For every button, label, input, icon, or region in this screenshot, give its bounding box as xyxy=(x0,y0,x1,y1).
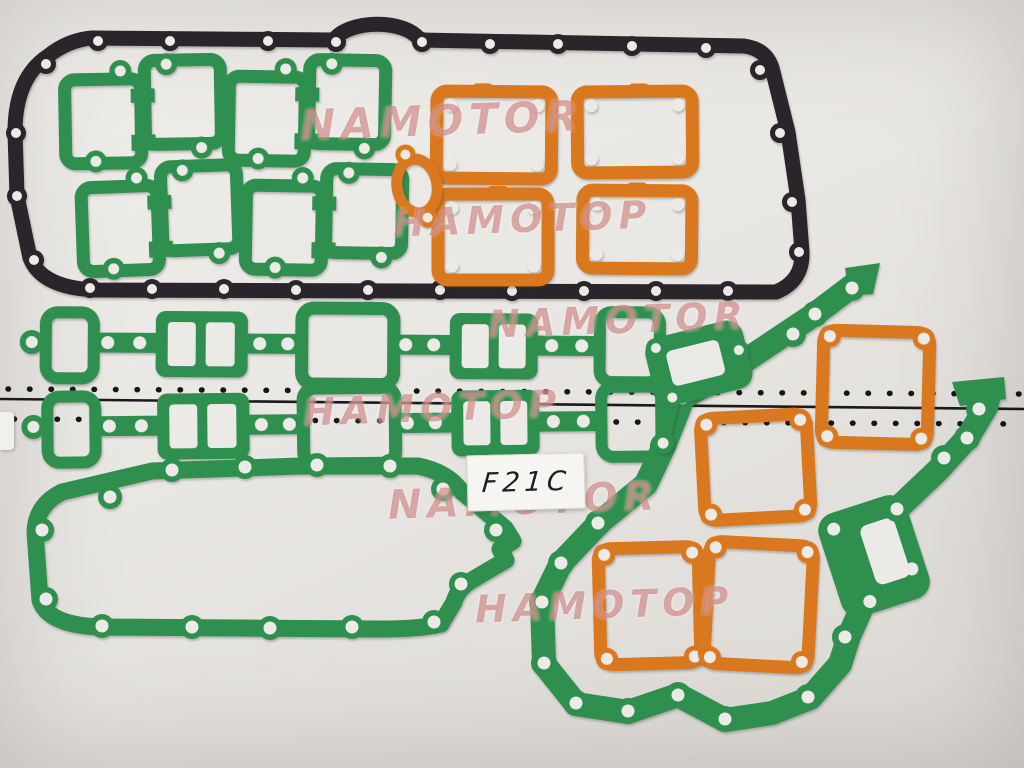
side-cover-gasket-4 xyxy=(582,182,692,269)
gasket-set-photo: NAMOTOR HAMOTOP HAMOTOP NAMOTOR NAMOTOR … xyxy=(0,0,1024,768)
side-cover-gasket-1 xyxy=(436,83,552,179)
rocker-cover-gasket-4 xyxy=(698,536,819,674)
exhaust-port-gasket-3 xyxy=(80,157,240,280)
rocker-cover-gasket-2 xyxy=(695,408,817,526)
side-cover-gasket-3 xyxy=(438,186,548,280)
pegboard-edge-tab xyxy=(0,412,14,450)
oil-pan-gasket xyxy=(30,453,513,640)
rocker-cover-gasket-3 xyxy=(593,541,706,670)
rocker-cover-gasket-1 xyxy=(816,325,935,450)
front-cover-mount-pad xyxy=(814,490,935,621)
side-cover-gasket-2 xyxy=(577,83,693,173)
exhaust-port-gasket-2 xyxy=(228,51,386,172)
exhaust-port-gasket-4 xyxy=(245,160,403,281)
manifold-gasket-1 xyxy=(19,306,678,387)
part-number-sticker: F21C xyxy=(466,452,585,511)
exhaust-port-gasket-1 xyxy=(64,52,222,173)
gasket-layout xyxy=(0,0,1024,768)
part-number-text: F21C xyxy=(480,465,571,498)
